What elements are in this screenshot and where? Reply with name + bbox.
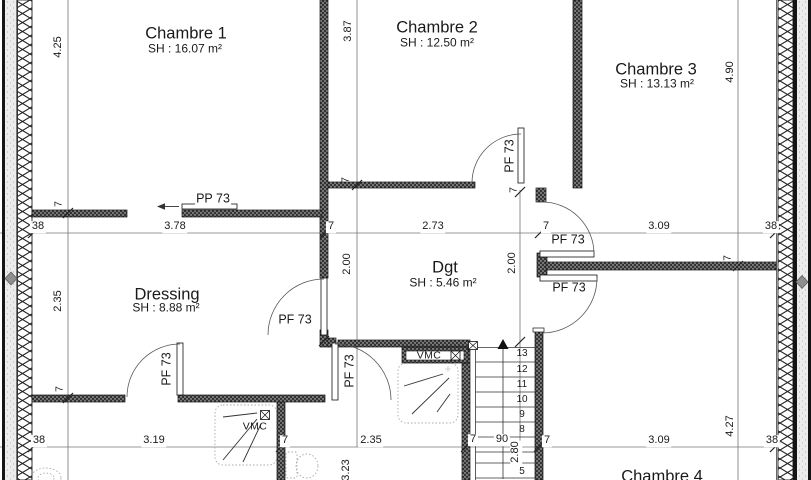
wall-tick-0: 7 xyxy=(53,201,64,207)
stair-up-arrow-icon xyxy=(498,339,509,349)
dim-left-0: 4.25 xyxy=(53,35,65,58)
room-area-dressing: SH : 8.88 m² xyxy=(132,302,199,315)
stair-step-number: 11 xyxy=(517,380,527,391)
door-leaves xyxy=(177,128,597,400)
room-label-degagement: Dgt xyxy=(432,259,458,276)
dim-bottom-2: 7 xyxy=(280,435,290,447)
dim-right-0: 4.90 xyxy=(725,60,737,83)
stair-step-number: 12 xyxy=(516,365,527,376)
toilet-tank-outline xyxy=(286,452,297,478)
dim-mid-1: 2.00 xyxy=(342,252,354,275)
dim-bottom-8: 38 xyxy=(764,435,780,447)
dim-bottom-6: 7 xyxy=(542,435,552,447)
dim-stair-0: 2.00 xyxy=(507,251,519,274)
dim-top-2: 7 xyxy=(326,221,336,233)
outer-wall-left xyxy=(2,0,32,480)
dim-mid-2: 3.23 xyxy=(341,458,353,480)
slide-direction-arrow-icon xyxy=(157,203,165,210)
stair-step-number: 9 xyxy=(519,410,525,421)
dim-bottom-5: 90 xyxy=(494,434,510,446)
door-label-pp73-chambre1: PP 73 xyxy=(195,192,231,205)
dim-bottom-1: 3.19 xyxy=(141,435,166,447)
staircase xyxy=(470,342,535,480)
door-label-pf73-bathroom: PF 73 xyxy=(343,353,356,388)
wall-tick-2: 7 xyxy=(508,187,519,193)
stair-step-number: 10 xyxy=(516,395,527,406)
dim-top-5: 3.09 xyxy=(646,221,671,233)
vmc-duct-label: VMC xyxy=(417,350,442,361)
room-area-chambre1: SH : 16.07 m² xyxy=(148,43,222,56)
dim-bottom-3: 2.35 xyxy=(358,435,383,447)
vmc-unit-label: VMC xyxy=(243,421,268,432)
door-label-pf73-dressing: PF 73 xyxy=(277,313,312,326)
toilet-bowl-outline xyxy=(296,454,318,478)
room-area-degagement: SH : 5.46 m² xyxy=(409,277,476,290)
outer-wall-right xyxy=(777,0,811,480)
wall-tick-1: 7 xyxy=(340,177,351,183)
dim-top-4: 7 xyxy=(541,221,551,233)
dim-top-3: 2.73 xyxy=(420,221,445,233)
room-label-chambre2: Chambre 2 xyxy=(396,19,478,36)
dim-stair-1: 2.80 xyxy=(510,440,522,463)
door-label-pf73-chambre4: PF 73 xyxy=(551,281,586,294)
stair-step-number: 13 xyxy=(516,349,527,360)
floor-plan: Chambre 1 SH : 16.07 m² Chambre 2 SH : 1… xyxy=(0,0,811,480)
wall-tick-4: 7 xyxy=(54,386,65,392)
dim-left-1: 2.35 xyxy=(53,289,65,312)
sink-outline xyxy=(31,468,61,480)
room-area-chambre2: SH : 12.50 m² xyxy=(400,37,474,50)
door-label-pf73-bottom-room: PF 73 xyxy=(160,351,173,386)
room-label-chambre1: Chambre 1 xyxy=(145,25,227,42)
shower-outline xyxy=(398,363,458,423)
wall-tick-3: 7 xyxy=(722,255,733,261)
dim-mid-0: 3.87 xyxy=(343,19,355,42)
room-area-chambre3: SH : 13.13 m² xyxy=(620,78,694,91)
dim-top-1: 3.78 xyxy=(162,221,187,233)
dim-bottom-0: 38 xyxy=(31,435,47,447)
dim-bottom-7: 3.09 xyxy=(646,435,671,447)
room-label-chambre4: Chambre 4 xyxy=(621,468,703,480)
door-label-pf73-chambre3: PF 73 xyxy=(550,233,585,246)
door-swing-arcs xyxy=(127,134,597,400)
stair-step-number: 5 xyxy=(519,467,525,478)
dim-right-1: 4.27 xyxy=(725,414,737,437)
dim-bottom-4: 7 xyxy=(468,434,478,446)
dim-top-0: 38 xyxy=(30,221,46,233)
stair-step-number: 8 xyxy=(519,425,525,436)
dim-top-6: 38 xyxy=(763,221,779,233)
door-label-pf73-chambre2: PF 73 xyxy=(503,138,516,173)
